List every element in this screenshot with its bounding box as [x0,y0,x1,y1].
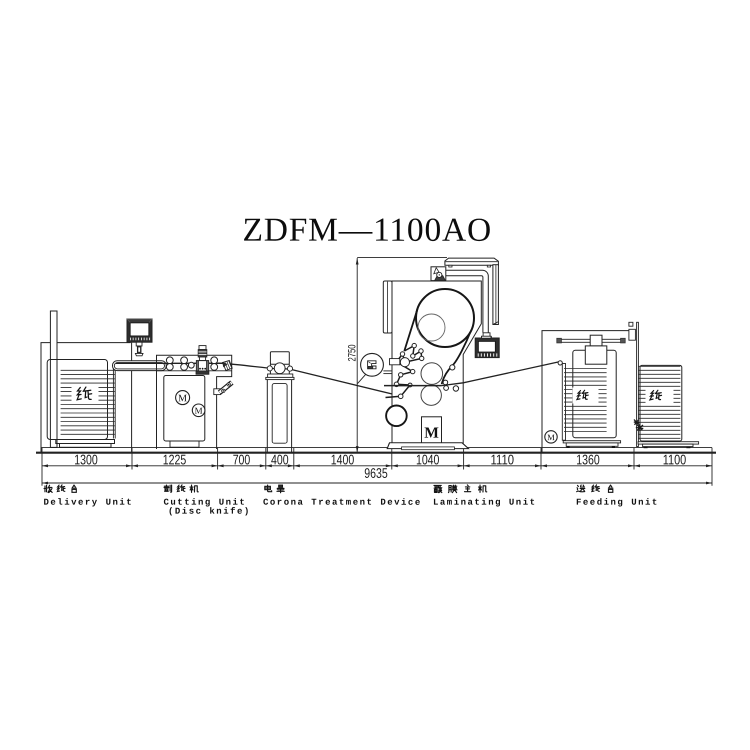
svg-text:1110: 1110 [491,451,515,467]
svg-text:Corona Treatment Device: Corona Treatment Device [263,498,422,508]
svg-text:1300: 1300 [74,451,98,467]
svg-text:2750: 2750 [347,345,359,362]
svg-text:1225: 1225 [163,451,187,467]
svg-text:1360: 1360 [576,451,600,467]
svg-text:Delivery Unit: Delivery Unit [43,498,133,508]
svg-text:Feeding Unit: Feeding Unit [576,498,659,508]
svg-text:9635: 9635 [364,465,388,481]
svg-text:Laminating Unit: Laminating Unit [433,498,537,508]
svg-text:1100: 1100 [663,451,687,467]
svg-text:M: M [424,425,439,442]
svg-text:M: M [195,406,203,416]
svg-text:700: 700 [233,451,251,467]
svg-text:M: M [547,432,555,442]
svg-text:(Disc knife): (Disc knife) [168,507,251,517]
svg-text:400: 400 [271,451,289,467]
svg-text:M: M [178,393,187,404]
svg-text:ZDFM—1100AO: ZDFM—1100AO [242,212,492,249]
svg-text:1040: 1040 [416,451,440,467]
svg-text:1400: 1400 [331,451,355,467]
